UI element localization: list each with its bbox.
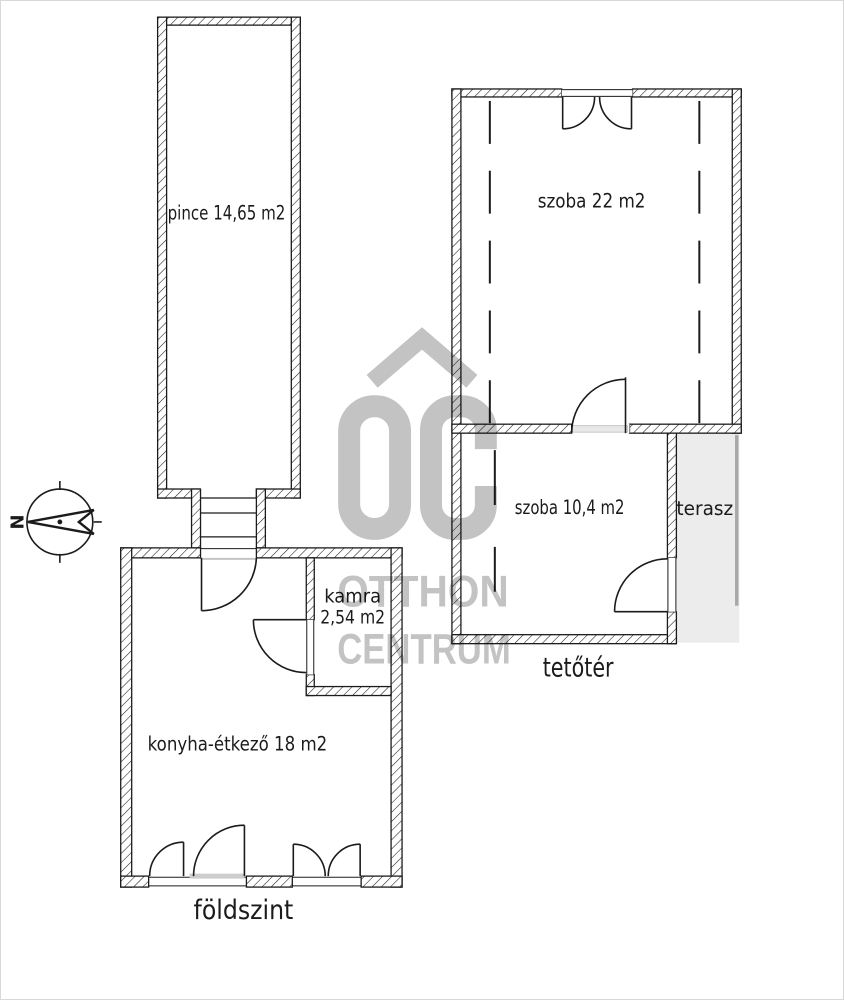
szoba22-door-threshold [573,426,628,432]
entry-door [201,549,257,611]
ground-wall-top-right [256,548,402,558]
floor-label-foldszint: földszint [194,895,294,926]
kamra-door-swing [253,620,306,673]
room-label-szoba22: szoba 22 m2 [538,189,646,213]
entry-door-swing [202,558,257,611]
window-swing-left [293,844,325,876]
szoba22-door [572,377,630,433]
attic-wall-middle-left [452,424,572,433]
terasz-area [676,433,739,643]
compass-north-letter: N [7,514,28,529]
ground-wall-bottom-2 [246,876,292,887]
watermark-text-centrum: CENTRUM [337,626,511,674]
attic-wall-top-right [633,89,742,97]
kamra-wall-left-upper [306,558,314,620]
szoba22-window-swing-right [600,97,632,129]
room-label-terasz: terasz [676,496,733,520]
ground-window [292,844,361,886]
front-door-swing-large [194,825,245,876]
floor-label-tetoter: tetőtér [543,653,615,684]
szoba22-window-swing-left [563,97,595,129]
room-label-szoba104: szoba 10,4 m2 [515,495,625,519]
attic-wall-right [732,89,741,433]
room-label-konyha: konyha-étkező 18 m2 [148,731,328,755]
pince-wall-top [158,17,301,25]
pince-wall-left [158,17,167,498]
attic-wall-middle-right [630,424,742,433]
stairs [201,498,257,537]
ground-wall-bottom-1 [121,876,149,887]
watermark-letter-o [349,406,400,529]
szoba104-wall-right-lower [667,612,676,644]
front-door-threshold [190,874,245,879]
attic-wall-top-left [452,89,562,97]
pince-wall-right [291,17,300,498]
szoba22-window-opening [562,89,633,97]
floor-plan-svg: pince 14,65 m2 [1,1,843,999]
front-door [149,825,247,886]
compass-center-dot [57,520,62,525]
kamra-door [253,620,314,675]
ground-wall-top-left [121,548,201,558]
terasz-door-swing [615,559,668,612]
ground-wall-bottom-3 [361,876,402,887]
szoba104-wall-right-upper [667,433,676,558]
front-door-swing-small [150,842,184,876]
room-label-pince: pince 14,65 m2 [168,201,286,225]
ground-wall-left [121,548,132,887]
window-swing-right [328,844,360,876]
szoba22-window [562,89,633,129]
floor-plan-image: pince 14,65 m2 [0,0,844,1000]
kamra-door-opening [306,620,314,675]
stairwell-wall-right [256,489,265,548]
terasz-door [615,558,677,612]
terasz-floor [676,433,739,643]
kamra-wall-bottom [306,687,391,696]
stairwell-wall-left [192,489,201,548]
compass-icon: N [7,481,101,563]
pince-room: pince 14,65 m2 [158,17,301,548]
terasz-door-opening [667,558,676,612]
watermark-text-otthon: OTTHON [337,566,509,617]
